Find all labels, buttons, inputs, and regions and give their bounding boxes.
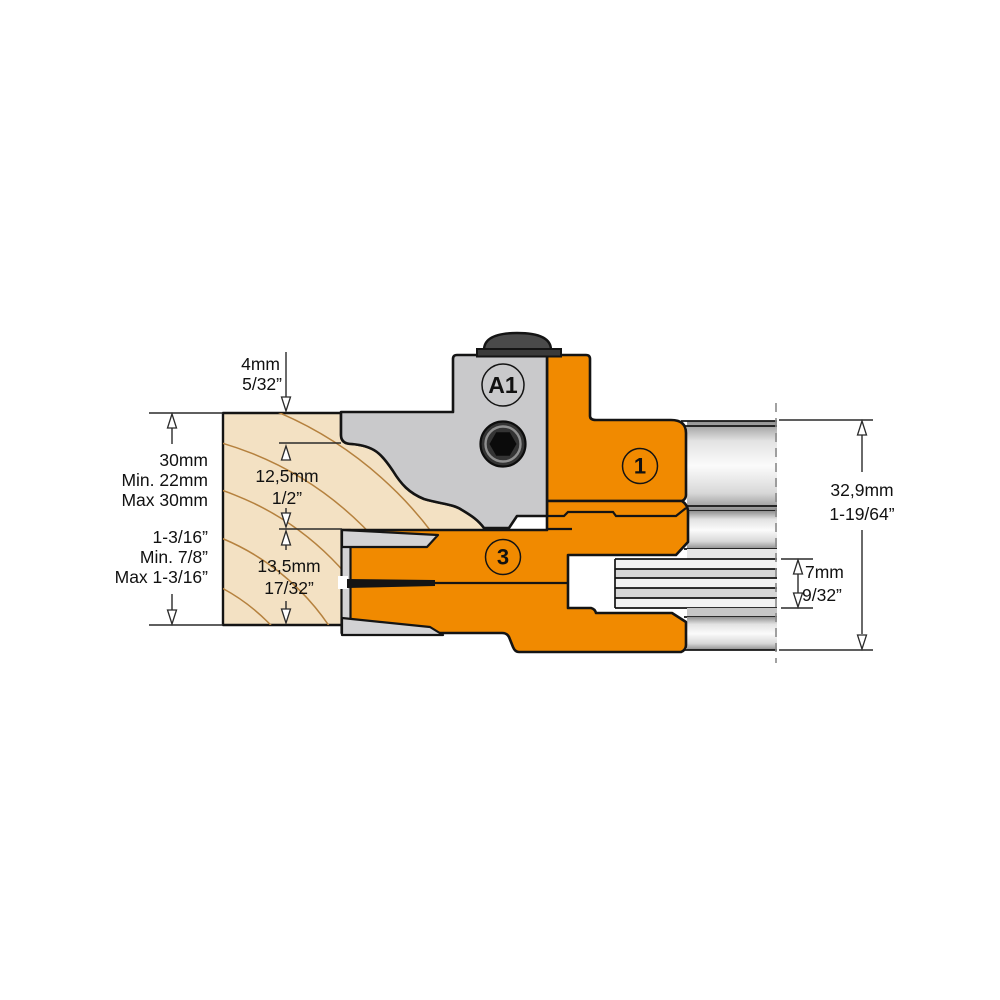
dim-upper-in: 1/2”	[272, 488, 302, 508]
dim-stock-mm-1: Min. 22mm	[121, 470, 208, 490]
bolt-collar	[477, 349, 561, 357]
dim-groove-mm: 7mm	[805, 562, 844, 582]
badge-1-label: 1	[634, 454, 646, 479]
dim-groove: 7mm 9/32”	[781, 559, 844, 608]
dim-stock-mm-0: 30mm	[159, 450, 208, 470]
dim-lower-mm: 13,5mm	[257, 556, 320, 576]
cutter-head-diagram-page: A1 1 3 4mm 5/32” 30mm Min. 22mm Max 30mm…	[0, 0, 1000, 1000]
clamp-screw-bolt	[477, 333, 561, 357]
hex-socket-screw	[481, 422, 526, 467]
cutter-head-diagram: A1 1 3 4mm 5/32” 30mm Min. 22mm Max 30mm…	[0, 0, 1000, 1000]
dim-upper-mm: 12,5mm	[255, 466, 318, 486]
dim-groove-in: 9/32”	[802, 585, 842, 605]
dim-stock-height: 30mm Min. 22mm Max 30mm 1-3/16” Min. 7/8…	[115, 413, 223, 625]
dim-total-height: 32,9mm 1-19/64”	[779, 420, 895, 650]
slit-gap	[338, 576, 348, 589]
dim-stock-in-0: 1-3/16”	[153, 527, 209, 547]
badge-a1-label: A1	[488, 372, 518, 398]
dim-stock-mm-2: Max 30mm	[121, 490, 208, 510]
dim-top-step-in: 5/32”	[242, 374, 282, 394]
dim-total-mm: 32,9mm	[830, 480, 893, 500]
dim-stock-in-1: Min. 7/8”	[140, 547, 208, 567]
thread-section	[615, 559, 777, 608]
bolt-dome	[484, 333, 551, 350]
badge-3-label: 3	[497, 545, 509, 570]
dim-top-step-mm: 4mm	[241, 354, 280, 374]
dim-lower-in: 17/32”	[264, 578, 314, 598]
dim-stock-in-2: Max 1-3/16”	[115, 567, 209, 587]
dim-total-in: 1-19/64”	[829, 504, 894, 524]
cutter-body-upper	[547, 355, 686, 501]
